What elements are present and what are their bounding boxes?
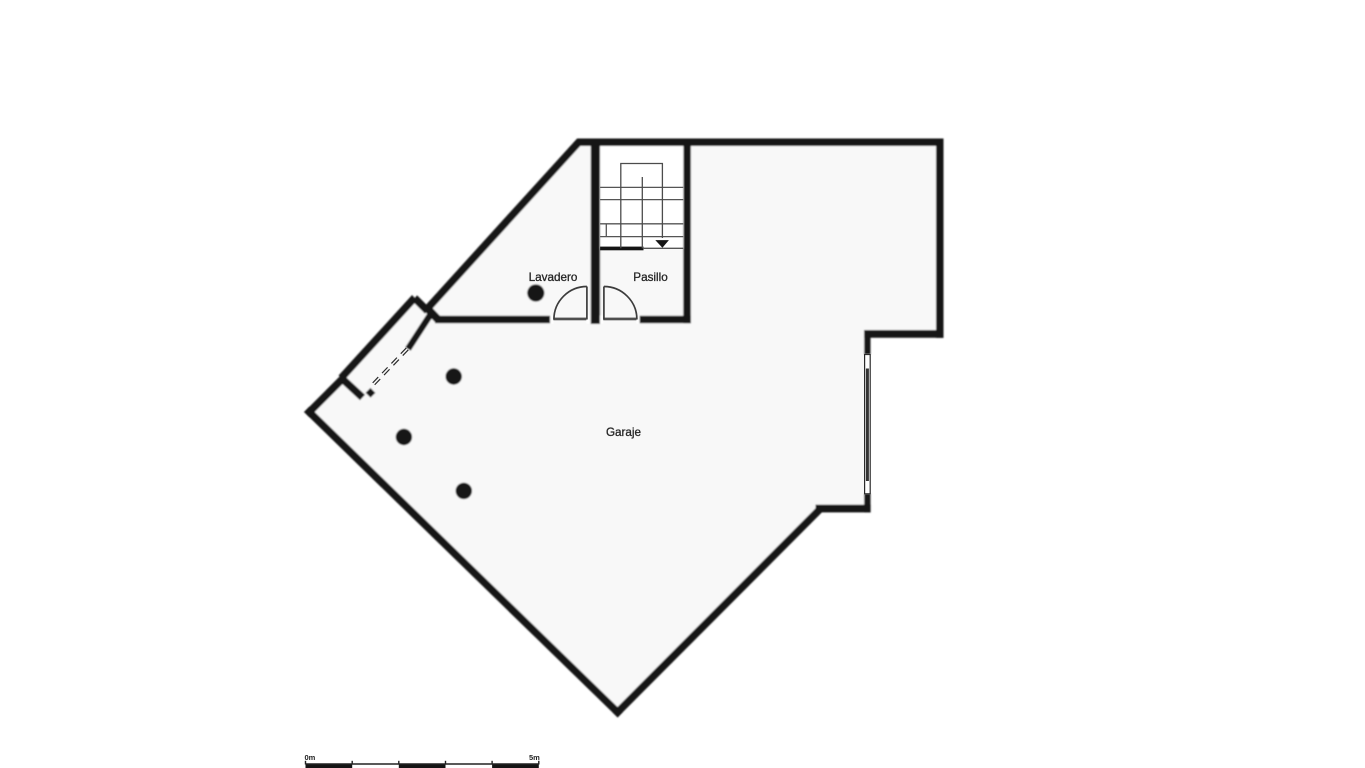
svg-text:5m: 5m [529, 753, 540, 762]
svg-text:Lavadero: Lavadero [529, 271, 578, 284]
svg-text:0m: 0m [305, 753, 316, 762]
svg-text:Pasillo: Pasillo [633, 271, 668, 284]
svg-text:Garaje: Garaje [606, 426, 641, 439]
